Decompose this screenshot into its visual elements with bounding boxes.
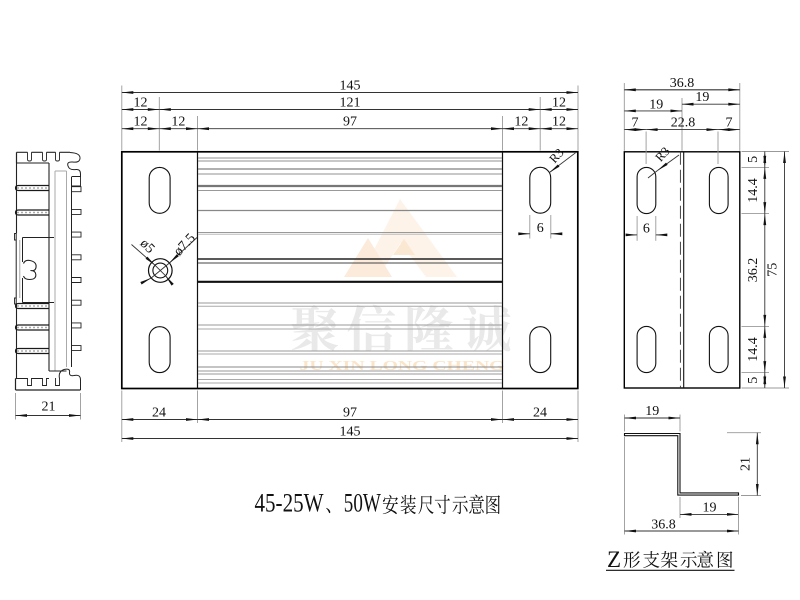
svg-text:14.4: 14.4	[746, 337, 761, 362]
svg-text:5: 5	[746, 156, 761, 163]
svg-text:12: 12	[134, 115, 148, 130]
svg-text:97: 97	[343, 406, 357, 421]
svg-text:36.2: 36.2	[746, 258, 761, 283]
svg-text:24: 24	[152, 406, 166, 421]
svg-text:36.8: 36.8	[670, 76, 695, 91]
svg-text:12: 12	[552, 115, 566, 130]
svg-text:75: 75	[766, 263, 781, 277]
svg-text:12: 12	[514, 115, 528, 130]
svg-text:21: 21	[738, 457, 753, 471]
svg-text:14.4: 14.4	[746, 178, 761, 203]
svg-text:19: 19	[703, 500, 717, 515]
svg-text:6: 6	[643, 221, 650, 236]
svg-text:36.8: 36.8	[651, 518, 676, 533]
svg-text:19: 19	[645, 404, 659, 419]
svg-text:19: 19	[695, 90, 709, 105]
svg-text:24: 24	[533, 406, 547, 421]
svg-text:12: 12	[552, 96, 566, 111]
svg-text:50W: 50W	[344, 489, 381, 518]
svg-text:22.8: 22.8	[671, 116, 696, 131]
svg-text:Z: Z	[607, 547, 621, 572]
svg-text:145: 145	[340, 79, 361, 94]
svg-text:12: 12	[171, 115, 185, 130]
svg-text:19: 19	[649, 97, 663, 112]
svg-text:6: 6	[537, 221, 544, 236]
svg-text:21: 21	[42, 400, 56, 415]
svg-text:97: 97	[343, 115, 357, 130]
svg-text:121: 121	[340, 96, 361, 111]
svg-text:145: 145	[340, 425, 361, 440]
svg-text:7: 7	[726, 116, 733, 131]
svg-text:5: 5	[746, 377, 761, 384]
svg-text:45-25W: 45-25W	[255, 489, 324, 518]
svg-text:7: 7	[632, 116, 639, 131]
svg-text:12: 12	[134, 96, 148, 111]
